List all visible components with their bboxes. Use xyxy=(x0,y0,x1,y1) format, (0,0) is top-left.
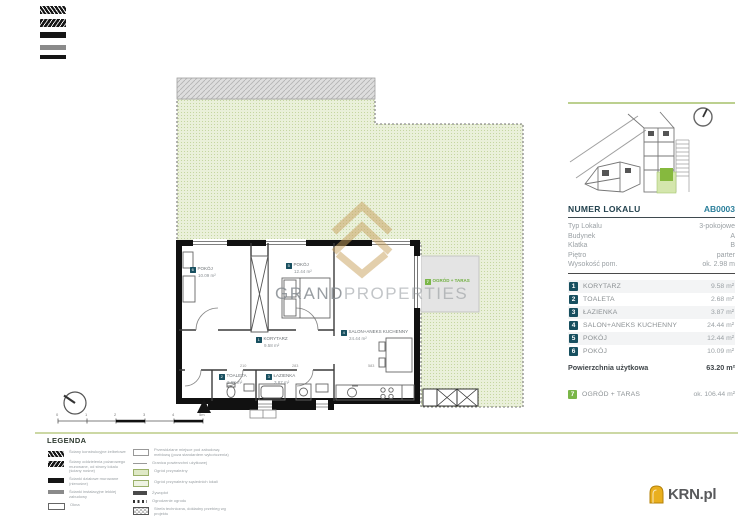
dimension-label: 210 xyxy=(240,364,246,368)
room-number-chip: 6 xyxy=(190,267,196,273)
garden-neighbor-icon xyxy=(133,480,149,487)
scale-tick: 1 xyxy=(85,412,87,417)
room-number-chip: 2 xyxy=(219,374,225,380)
krn-logo-text: KRN.pl xyxy=(668,486,716,503)
technical-zone-icon xyxy=(133,507,149,515)
plan-room-label-1: 1KORYTARZ 9.58 m² xyxy=(256,336,288,348)
wall-partition-icon xyxy=(48,478,64,483)
wardrobe xyxy=(251,256,268,332)
room-row: 6 POKÓJ10.09 m² xyxy=(568,345,735,358)
legend-item: Żywopłot xyxy=(133,491,233,496)
room-number-chip: 4 xyxy=(569,321,578,330)
bottom-rule xyxy=(35,432,738,434)
krn-house-icon xyxy=(648,484,665,504)
legend-item: Okna xyxy=(48,503,130,511)
dimension-label: 583 xyxy=(368,364,374,368)
wall-fire-icon xyxy=(48,461,64,467)
scale-tick: 4 xyxy=(172,412,174,417)
unit-details: Typ Lokalu3-pokojowe BudynekA KlatkaB Pi… xyxy=(568,222,735,270)
room-number-chip: 6 xyxy=(569,347,578,356)
plan-room-label-2: 2TOALETA 2.68 m² xyxy=(219,373,247,385)
room-row: 2 TOALETA2.68 m² xyxy=(568,293,735,306)
legend-item: Granica powierzchni użytkowej xyxy=(133,461,233,466)
legend-item: Ścianki działowe murowane (nienośne) xyxy=(48,477,130,486)
plan-room-label-6: 6POKÓJ 10.09 m² xyxy=(190,266,216,278)
detail-row: Piętroparter xyxy=(568,251,735,261)
room-row: 4 SALON+ANEKS KUCHENNY24.44 m² xyxy=(568,319,735,332)
room-number-chip: 1 xyxy=(569,282,578,291)
detail-row: BudynekA xyxy=(568,232,735,242)
site-compass-icon xyxy=(694,108,712,126)
legend-item: Przewidziane miejsce pod zabudowę meblow… xyxy=(133,448,233,457)
room-number-chip: 3 xyxy=(569,308,578,317)
room-row: 1 KORYTARZ9.58 m² xyxy=(568,280,735,293)
legend-item: Strefa techniczna, dokładny przebieg wg … xyxy=(133,507,233,516)
legend-item: Ściany konstrukcyjne żelbetowe xyxy=(48,450,130,457)
legend-item: Ścianki instalacyjne lekkiej zabudowy xyxy=(48,490,130,499)
floorplan-page: 0 1 2 3 4 5m 210 283 583 6POKÓJ 10.09 m²… xyxy=(0,0,740,524)
room-row: 3 ŁAZIENKA3.87 m² xyxy=(568,306,735,319)
dimension-label: 283 xyxy=(292,364,298,368)
wall-structural-icon xyxy=(48,451,64,457)
usable-area-line-icon xyxy=(133,463,147,464)
window-icon xyxy=(48,503,65,510)
krn-logo[interactable]: KRN.pl xyxy=(648,484,716,504)
legend-item: Ogród przynależny sąsiednich lokali xyxy=(133,480,233,488)
legend-item: Ogród przynależny xyxy=(133,469,233,477)
room-list: 1 KORYTARZ9.58 m² 2 TOALETA2.68 m² 3 ŁAZ… xyxy=(568,280,735,358)
room-number-chip: 5 xyxy=(286,263,292,269)
total-area-row: Powierzchnia użytkowa63.20 m² xyxy=(568,363,735,372)
scale-tick: 5m xyxy=(199,412,205,417)
wall-light-icon xyxy=(48,490,64,494)
site-unit-highlight xyxy=(657,168,676,193)
scale-bar xyxy=(58,419,203,424)
detail-row: Typ Lokalu3-pokojowe xyxy=(568,222,735,232)
room-number-chip: 2 xyxy=(569,295,578,304)
legend-item: Ogrodzenie ogrodu xyxy=(133,499,233,504)
detail-row: Wysokość pom.ok. 2.98 m xyxy=(568,260,735,270)
furniture-zone-icon xyxy=(133,449,149,456)
room-row: 5 POKÓJ12.44 m² xyxy=(568,332,735,345)
legend-right-column: Przewidziane miejsce pod zabudowę meblow… xyxy=(133,448,233,520)
room-number-chip: 4 xyxy=(341,330,347,336)
garden-own-icon xyxy=(133,469,149,476)
legend-title: LEGENDA xyxy=(47,436,86,445)
site-roads xyxy=(570,116,646,178)
fence-icon xyxy=(133,500,147,503)
site-plan-svg xyxy=(568,104,735,196)
room-number-chip: 5 xyxy=(569,334,578,343)
garden-number-chip: 7 xyxy=(568,390,577,399)
unit-number-value: AB0003 xyxy=(704,204,735,214)
panel-divider xyxy=(568,273,735,274)
hedge-icon xyxy=(133,491,147,495)
pavement-strip xyxy=(177,78,375,99)
room-number-chip: 1 xyxy=(256,337,262,343)
plan-room-label-5: 5POKÓJ 12.44 m² xyxy=(286,262,312,274)
compass-icon xyxy=(64,392,86,414)
unit-number-label: NUMER LOKALU xyxy=(568,204,641,214)
site-balconies xyxy=(676,140,689,192)
legend-left-column: Ściany konstrukcyjne żelbetowe Ściany od… xyxy=(48,450,130,514)
outdoor-area-row: 7 OGRÓD + TARAS ok. 106.44 m² xyxy=(568,390,735,399)
unit-info-panel: NUMER LOKALU AB0003 Typ Lokalu3-pokojowe… xyxy=(568,102,735,399)
plan-room-label-3: 3ŁAZIENKA 3.87 m² xyxy=(266,373,295,385)
pergola xyxy=(423,389,478,406)
scale-tick: 0 xyxy=(56,412,58,417)
plan-room-label-4: 4SALON+ANEKS KUCHENNY 24.44 m² xyxy=(341,329,408,341)
scale-tick: 2 xyxy=(114,412,116,417)
unit-number-header: NUMER LOKALU AB0003 xyxy=(568,204,735,218)
scale-tick: 3 xyxy=(143,412,145,417)
watermark-text: GRANDPROPERTIES xyxy=(275,284,465,304)
legend-item: Ściany oddzielenia pożarowego murowane, … xyxy=(48,460,130,474)
room-number-chip: 3 xyxy=(266,374,272,380)
entry-steps xyxy=(250,410,276,418)
detail-row: KlatkaB xyxy=(568,241,735,251)
